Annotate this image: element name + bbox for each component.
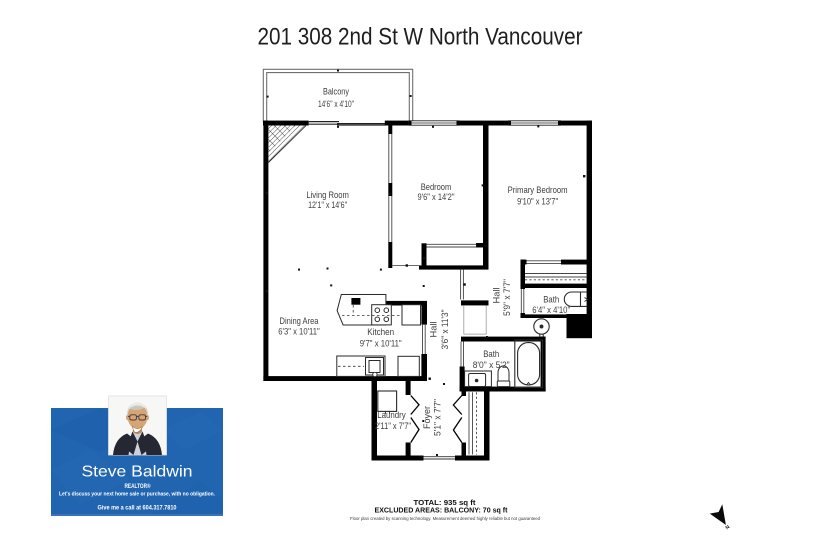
svg-text:Primary Bedroom: Primary Bedroom: [508, 185, 568, 196]
svg-text:Hall: Hall: [428, 322, 439, 338]
svg-text:EXCLUDED AREAS: BALCONY: 70 sq: EXCLUDED AREAS: BALCONY: 70 sq ft: [375, 508, 509, 515]
svg-text:9'7" x 10'11": 9'7" x 10'11": [360, 339, 402, 349]
svg-text:TOTAL: 935 sq ft: TOTAL: 935 sq ft: [414, 500, 477, 507]
svg-text:Kitchen: Kitchen: [367, 327, 394, 338]
svg-text:REALTOR®: REALTOR®: [125, 483, 151, 490]
svg-text:14'6" x 4'10": 14'6" x 4'10": [318, 99, 354, 109]
svg-text:Give me a call at 604.317.781: Give me a call at 604.317.7810: [98, 504, 177, 511]
svg-text:5'9" x 7'7": 5'9" x 7'7": [502, 279, 512, 316]
svg-text:2'11" x 7'7": 2'11" x 7'7": [375, 421, 411, 431]
svg-text:Let's discuss your next home s: Let's discuss your next home sale or pur…: [59, 491, 215, 497]
svg-text:6'4" x 4'10": 6'4" x 4'10": [532, 305, 570, 315]
svg-text:6'3" x 10'11": 6'3" x 10'11": [278, 327, 320, 337]
svg-text:Laundry: Laundry: [377, 410, 406, 421]
svg-text:Bath: Bath: [483, 349, 499, 360]
svg-text:Floor plan created by scanning: Floor plan created by scanning technolog…: [350, 516, 540, 521]
svg-text:Steve Baldwin: Steve Baldwin: [82, 464, 193, 481]
svg-text:201 308 2nd St W North Vancouv: 201 308 2nd St W North Vancouver: [258, 24, 583, 51]
svg-text:Foyer: Foyer: [422, 406, 433, 429]
svg-text:8'0" x 5'2": 8'0" x 5'2": [473, 360, 510, 370]
svg-text:5'1" x 7'7": 5'1" x 7'7": [432, 399, 442, 436]
svg-text:Hall: Hall: [491, 288, 502, 304]
svg-text:9'10" x 13'7": 9'10" x 13'7": [517, 197, 558, 207]
svg-text:Bath: Bath: [543, 295, 559, 306]
svg-text:12'1" x 14'6": 12'1" x 14'6": [308, 200, 347, 210]
svg-text:Dining Area: Dining Area: [280, 316, 320, 327]
svg-text:3'6" x 11'3": 3'6" x 11'3": [440, 310, 450, 350]
svg-text:Balcony: Balcony: [323, 87, 349, 97]
svg-text:9'6" x 14'2": 9'6" x 14'2": [418, 192, 455, 202]
